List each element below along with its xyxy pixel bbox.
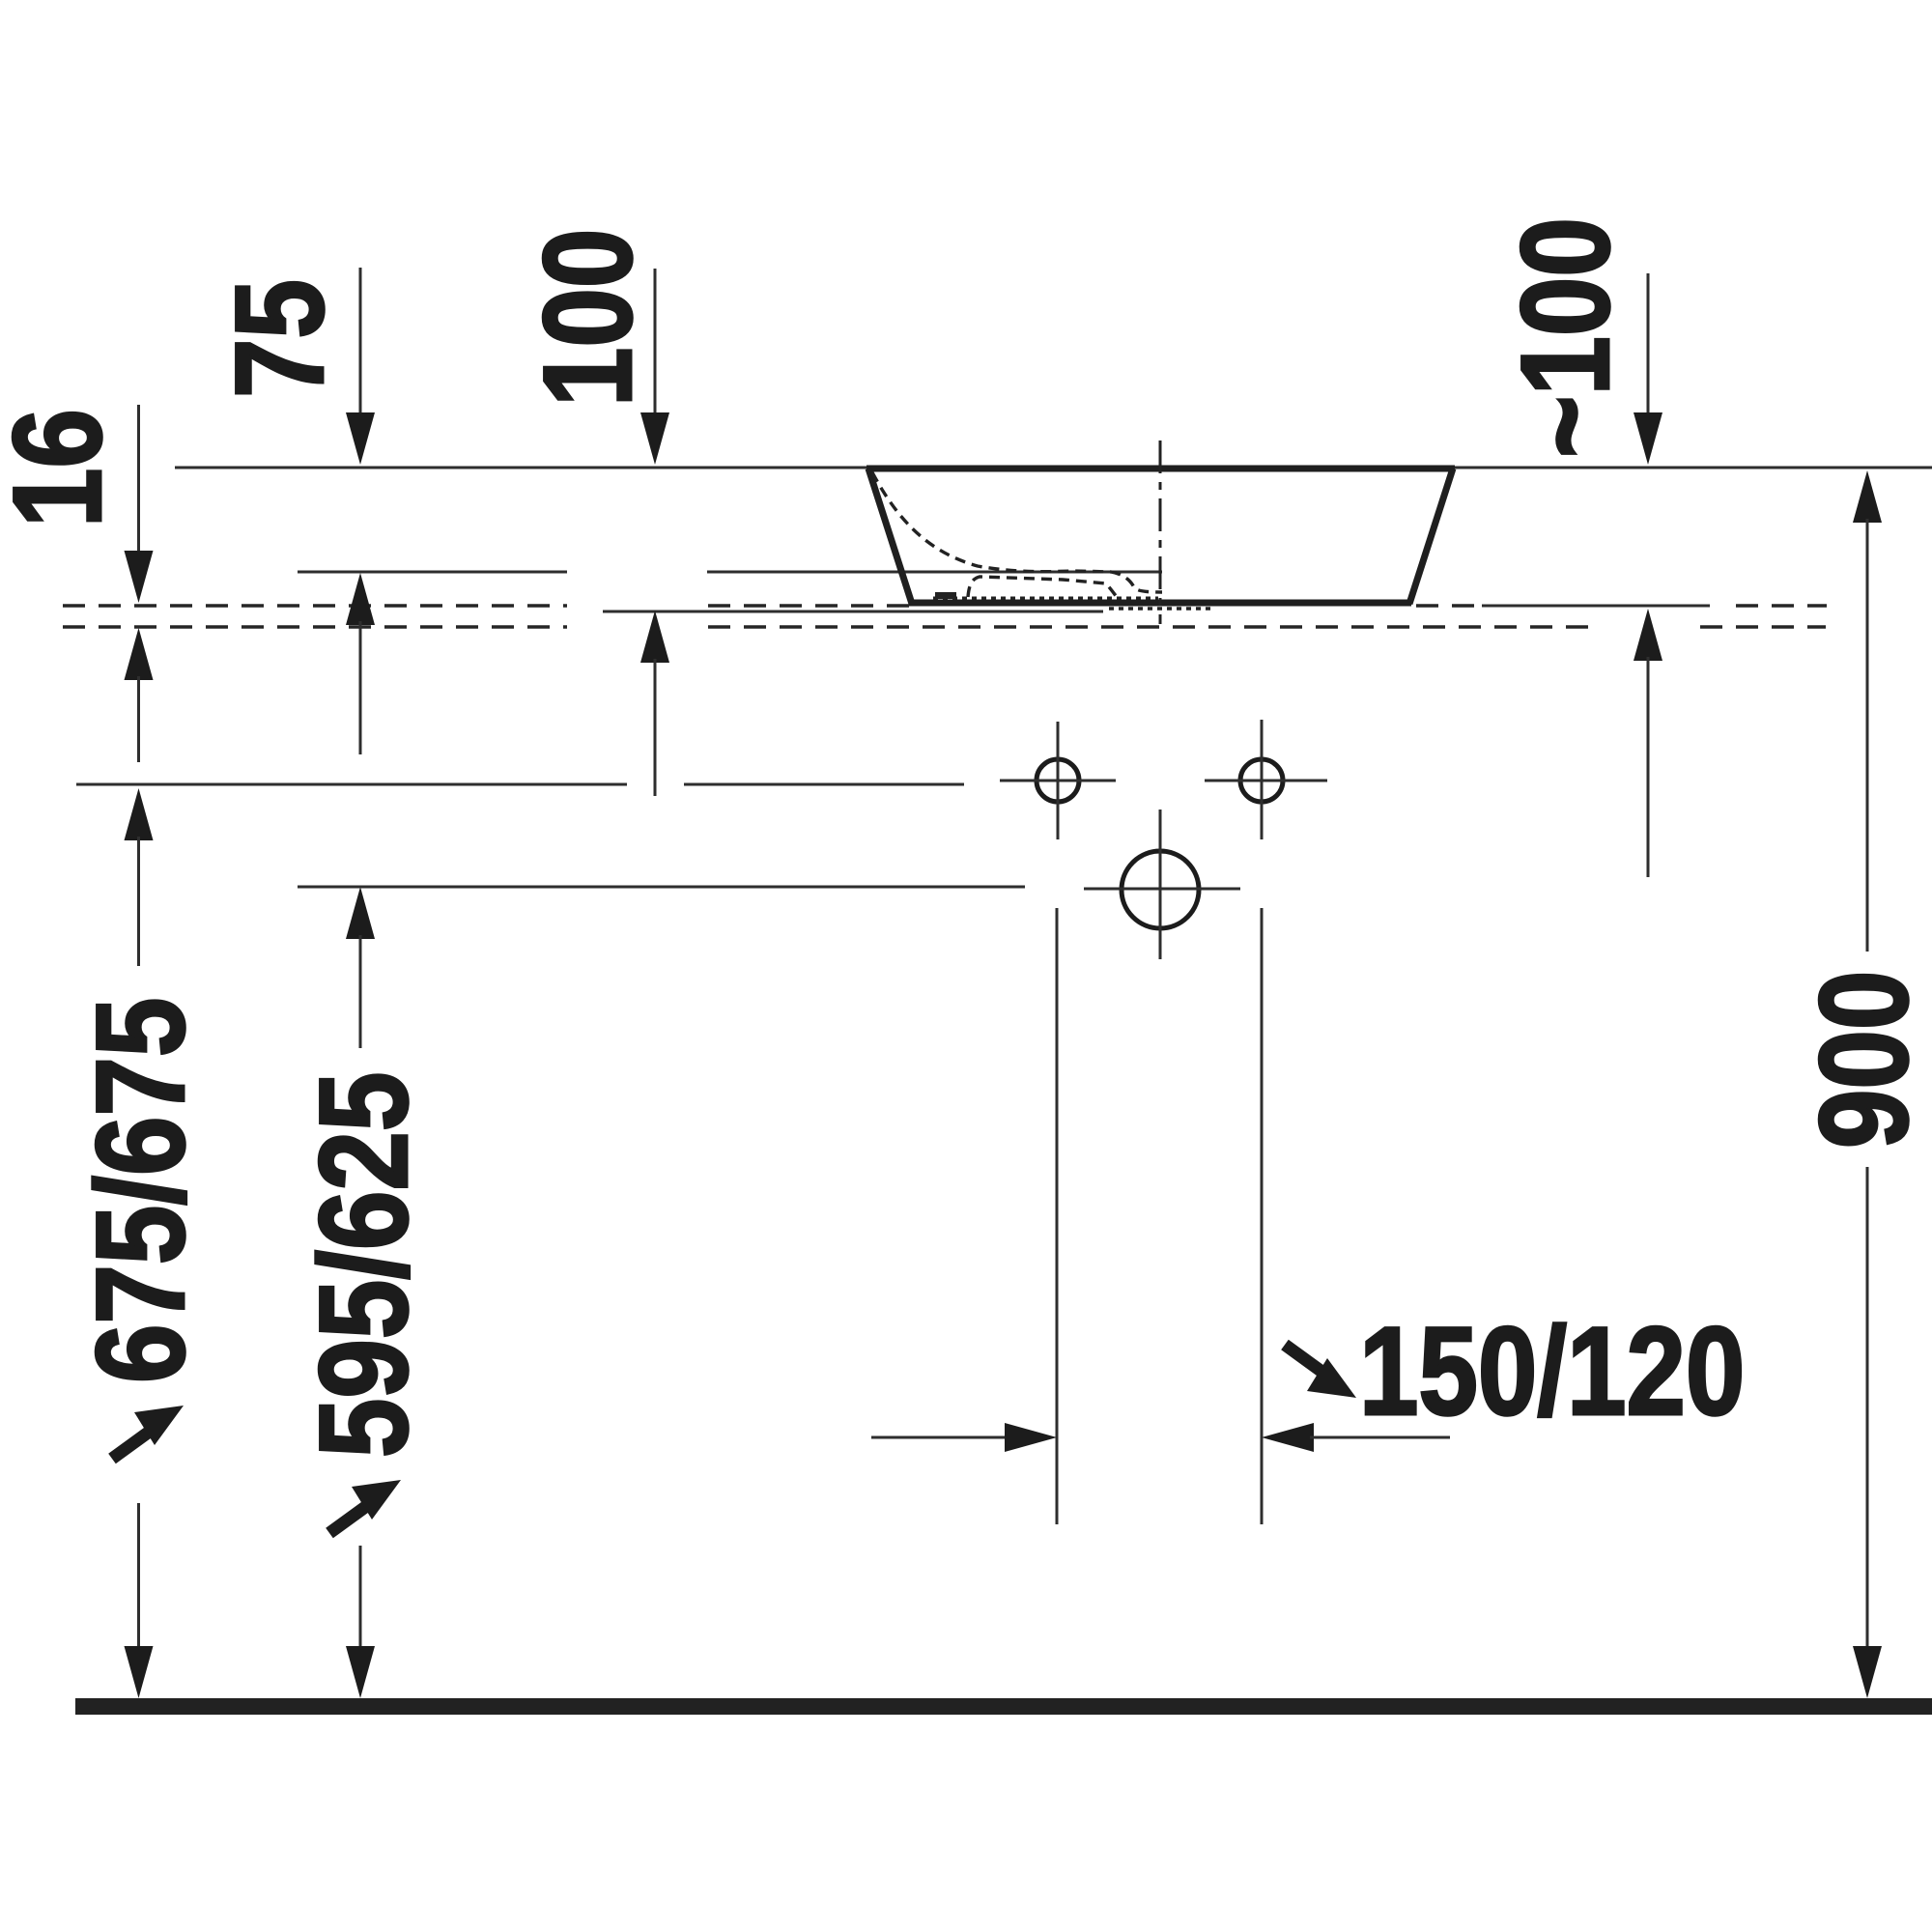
svg-text:900: 900 [1794, 971, 1932, 1149]
svg-text:75: 75 [210, 279, 350, 398]
svg-text:595/625: 595/625 [294, 1072, 434, 1458]
svg-text:~100: ~100 [1495, 217, 1635, 458]
svg-text:100: 100 [518, 229, 658, 407]
svg-text:675/675: 675/675 [71, 998, 211, 1383]
svg-text:150/120: 150/120 [1359, 1301, 1745, 1441]
svg-text:16: 16 [0, 409, 128, 527]
